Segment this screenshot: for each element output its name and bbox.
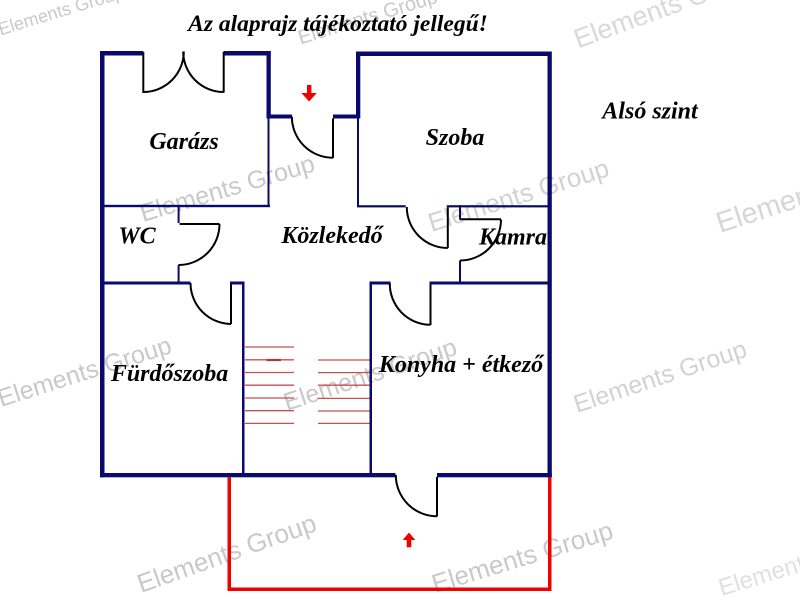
- svg-text:Fürdőszoba: Fürdőszoba: [110, 361, 228, 387]
- svg-text:Elements Group: Elements Group: [715, 525, 800, 600]
- svg-text:Elements Group: Elements Group: [570, 0, 764, 54]
- svg-text:Elements Group: Elements Group: [137, 150, 318, 228]
- svg-text:Elements Group: Elements Group: [712, 144, 800, 239]
- svg-text:Elements Group: Elements Group: [570, 335, 750, 419]
- svg-text:WC: WC: [118, 224, 156, 250]
- svg-text:Elements Group: Elements Group: [0, 0, 126, 39]
- svg-text:Az alaprajz tájékoztató jelleg: Az alaprajz tájékoztató jellegű!: [186, 11, 488, 37]
- svg-text:Alsó szint: Alsó szint: [600, 99, 699, 125]
- svg-text:Szoba: Szoba: [426, 125, 485, 151]
- svg-text:Elements Group: Elements Group: [428, 515, 616, 599]
- svg-text:Közlekedő: Közlekedő: [280, 223, 384, 249]
- svg-text:Garázs: Garázs: [149, 129, 218, 155]
- svg-text:Konyha + étkező: Konyha + étkező: [378, 352, 545, 378]
- svg-text:Kamra: Kamra: [478, 225, 547, 251]
- svg-text:Elements Group: Elements Group: [133, 508, 320, 599]
